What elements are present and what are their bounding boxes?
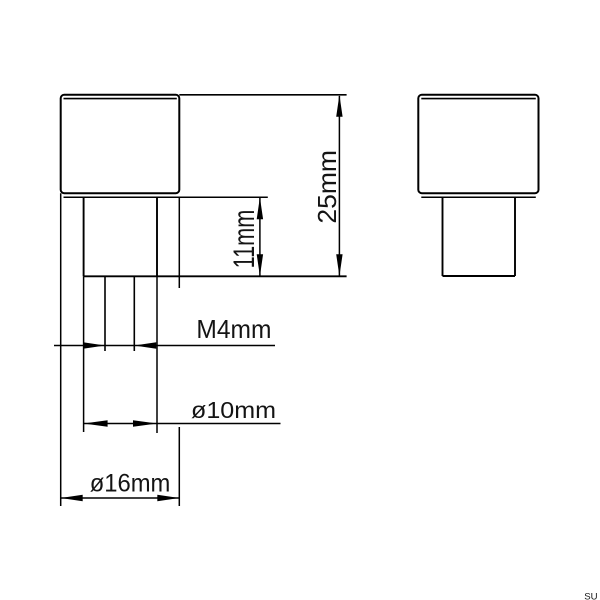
svg-text:ø16mm: ø16mm bbox=[90, 469, 171, 497]
svg-text:M4mm: M4mm bbox=[196, 314, 271, 344]
svg-text:25mm: 25mm bbox=[312, 150, 342, 224]
svg-text:ø10mm: ø10mm bbox=[191, 397, 276, 423]
svg-text:SU: SU bbox=[584, 591, 597, 600]
svg-text:11mm: 11mm bbox=[228, 210, 261, 269]
